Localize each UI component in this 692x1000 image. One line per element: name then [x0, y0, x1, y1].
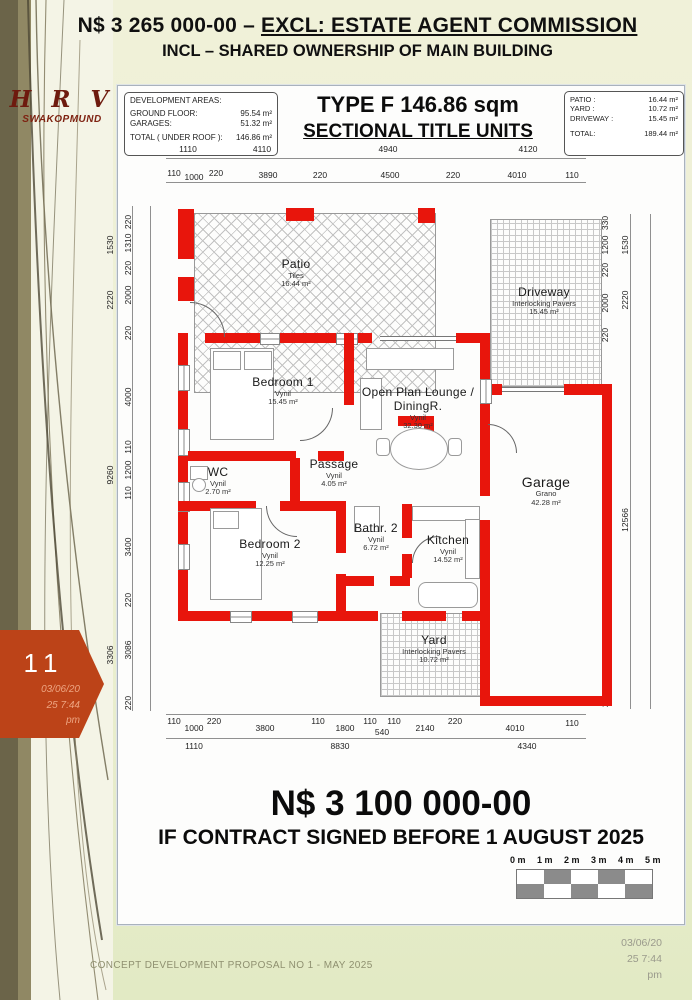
scale-label: 1 m [537, 855, 553, 865]
furniture-pillow [244, 351, 272, 370]
car [418, 582, 478, 608]
dim-label: 1110 [174, 741, 214, 751]
dim-label: 1530 [620, 223, 630, 267]
wall-segment [490, 696, 612, 706]
window [178, 365, 190, 391]
wall-segment [402, 611, 446, 621]
wall-segment [178, 611, 230, 621]
wall-segment [316, 611, 378, 621]
page-header: N$ 3 265 000-00 – EXCL: ESTATE AGENT COM… [30, 14, 685, 61]
wall-segment [178, 510, 188, 544]
scale-cell [571, 884, 598, 898]
dim-label: 4340 [507, 741, 547, 751]
dim-label: 3800 [245, 723, 285, 733]
room-label-patio: Patio Tiles 16.44 m² [281, 258, 311, 289]
garage-door [502, 387, 564, 392]
dim-line [166, 714, 586, 715]
room-label-yard: Yard Interlocking Pavers 10.72 m² [402, 634, 466, 665]
dim-label: 4010 [495, 723, 535, 733]
door-arc [300, 408, 333, 441]
room-label-wc: WC Vynil 2.70 m² [205, 466, 230, 497]
dim-label: 110 [552, 718, 592, 728]
wall-segment [402, 504, 412, 538]
wall-segment [480, 333, 490, 379]
ownership-subline: INCL – SHARED OWNERSHIP OF MAIN BUILDING [30, 42, 685, 61]
dim-label: 220 [123, 681, 133, 725]
decorative-strands [10, 0, 120, 1000]
scale-bar [516, 869, 653, 899]
badge-datetime: 03/06/20 25 7:44 pm [41, 682, 80, 729]
wall-segment [462, 611, 490, 621]
wall-segment [178, 389, 188, 429]
dim-line [166, 738, 586, 739]
wall-segment [290, 458, 300, 501]
room-label-kitchen: Kitchen Vynil 14.52 m² [427, 534, 469, 565]
scale-cell [544, 884, 571, 898]
dim-line [166, 182, 586, 183]
window [178, 544, 190, 570]
furniture-dining-table [390, 428, 448, 470]
dim-label: 220 [435, 716, 475, 726]
dim-line [650, 214, 651, 709]
room-label-lounge: Open Plan Lounge / DiningR. Vynil 32.30 … [348, 386, 488, 431]
furniture-chair [448, 438, 462, 456]
dim-label: 4500 [370, 170, 410, 180]
price-headline-amount: N$ 3 265 000-00 – [78, 14, 261, 37]
dim-label: 2220 [105, 278, 115, 322]
room-label-passage: Passage Vynil 4.05 m² [310, 458, 359, 489]
room-label-bedroom2: Bedroom 2 Vynil 12.25 m² [239, 538, 300, 569]
sliding-door [380, 336, 456, 341]
page-number: 11 [0, 648, 88, 679]
dim-label: 4940 [368, 144, 408, 154]
dim-label: 4120 [508, 144, 548, 154]
dim-label: 220 [300, 170, 340, 180]
scale-cell [517, 870, 544, 884]
wall-segment [336, 574, 346, 621]
wall-segment [250, 611, 292, 621]
wall-segment [278, 333, 336, 343]
scale-cell [517, 884, 544, 898]
dim-label: 4010 [497, 170, 537, 180]
dim-label: 220 [123, 311, 133, 355]
dim-label: 110 [552, 170, 592, 180]
wall-segment [336, 501, 346, 553]
scale-label: 5 m [645, 855, 661, 865]
footer-proposal-title: CONCEPT DEVELOPMENT PROPOSAL NO 1 - MAY … [90, 960, 373, 971]
wall-segment [356, 333, 372, 343]
dim-line [166, 158, 586, 159]
furniture-sofa [366, 348, 454, 370]
scale-cell [625, 884, 652, 898]
dim-label: 4000 [123, 375, 133, 419]
scale-label: 4 m [618, 855, 634, 865]
dim-label: 3400 [123, 525, 133, 569]
room-label-bedroom1: Bedroom 1 Vynil 15.45 m² [252, 376, 313, 407]
wall-segment [178, 209, 194, 259]
plan-sheet: DEVELOPMENT AREAS: GROUND FLOOR:95.54 m²… [117, 85, 685, 925]
room-label-bathroom2: Bathr. 2 Vynil 6.72 m² [354, 522, 398, 553]
scale-cell [625, 870, 652, 884]
dim-label: 8830 [320, 741, 360, 751]
company-logo: H R V SWAKOPMUND [8, 86, 116, 125]
wall-segment [346, 576, 374, 586]
wall-segment [178, 333, 188, 365]
room-label-driveway: Driveway Interlocking Pavers 15.45 m² [512, 286, 576, 317]
scale-cell [571, 870, 598, 884]
scale-label: 0 m [510, 855, 526, 865]
dim-label: 540 [362, 727, 402, 737]
dim-label: 2220 [620, 278, 630, 322]
window [292, 611, 318, 623]
promo-price: N$ 3 100 000-00 [118, 784, 684, 824]
logo-title: H R V [8, 86, 116, 113]
wall-segment [188, 451, 296, 461]
wall-segment [456, 333, 480, 343]
dim-line [150, 206, 151, 711]
room-label-garage: Garage Grano 42.28 m² [522, 474, 571, 507]
dim-label: 3890 [248, 170, 288, 180]
price-headline: N$ 3 265 000-00 – EXCL: ESTATE AGENT COM… [30, 14, 685, 38]
wall-segment [286, 208, 314, 221]
wall-segment [402, 554, 412, 578]
wall-segment [602, 384, 612, 706]
dim-label: 220 [194, 716, 234, 726]
door-arc [488, 424, 517, 453]
scale-label: 2 m [564, 855, 580, 865]
promo-condition: IF CONTRACT SIGNED BEFORE 1 AUGUST 2025 [118, 826, 684, 850]
dim-label: 1110 [168, 144, 208, 154]
dim-label: 12566 [620, 498, 630, 542]
scale-cell [598, 870, 625, 884]
dim-label: 4110 [242, 144, 282, 154]
dim-label: 220 [123, 578, 133, 622]
wall-segment [178, 454, 188, 482]
furniture-pillow [213, 511, 239, 529]
promo-price-block: N$ 3 100 000-00 IF CONTRACT SIGNED BEFOR… [118, 784, 684, 850]
wall-segment [418, 208, 435, 223]
dim-label: 110 [123, 471, 133, 515]
furniture-pillow [213, 351, 241, 370]
dim-label: 3086 [123, 628, 133, 672]
dim-label: 220 [196, 168, 236, 178]
furniture-chair [376, 438, 390, 456]
scale-cell [544, 870, 571, 884]
dim-line [630, 214, 631, 709]
dim-label: 220 [433, 170, 473, 180]
window [230, 611, 252, 623]
dim-label: 9260 [105, 453, 115, 497]
dim-label: 3306 [105, 633, 115, 677]
window [260, 333, 280, 345]
dim-label: 1530 [105, 223, 115, 267]
scale-label: 3 m [591, 855, 607, 865]
furniture-toilet-bowl [192, 478, 206, 492]
scale-cell [598, 884, 625, 898]
price-headline-exclusion: EXCL: ESTATE AGENT COMMISSION [261, 14, 637, 37]
logo-subtitle: SWAKOPMUND [8, 114, 116, 125]
door-arc [266, 506, 297, 537]
wall-segment [178, 277, 194, 301]
footer-datetime: 03/06/20 25 7:44 pm [621, 936, 662, 983]
floor-plan: 1110 4110 4940 4120 110 1000 220 3890 22… [118, 86, 684, 786]
